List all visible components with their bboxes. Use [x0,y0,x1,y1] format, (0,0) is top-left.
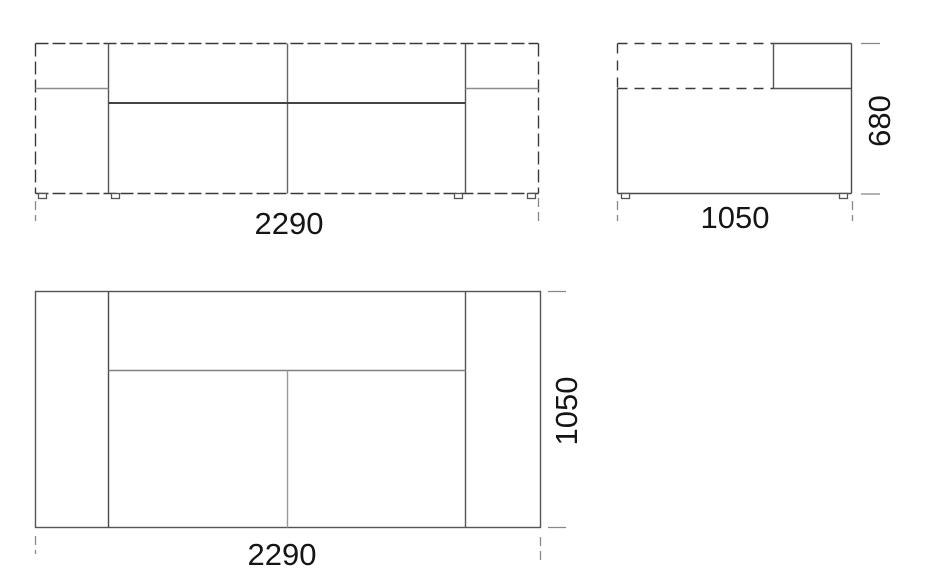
front-width-dimension-label: 2290 [189,209,389,239]
plan-width-dimension-label: 2290 [182,540,382,570]
plan-depth-dimension-label: 1050 [552,311,582,511]
front-foot-1 [39,194,47,199]
side-depth-dimension-label: 1050 [635,203,835,233]
front-foot-3 [455,194,463,199]
side-view [618,44,881,222]
front-foot-2 [112,194,120,199]
side-foot-2 [840,194,848,199]
front-view [36,44,539,225]
drawing-linework [0,0,930,586]
technical-drawing-canvas: 2290 1050 680 2290 1050 [0,0,930,586]
plan-view [36,292,567,561]
side-height-dimension-label: 680 [865,21,895,221]
front-foot-4 [528,194,536,199]
side-foot-1 [622,194,630,199]
